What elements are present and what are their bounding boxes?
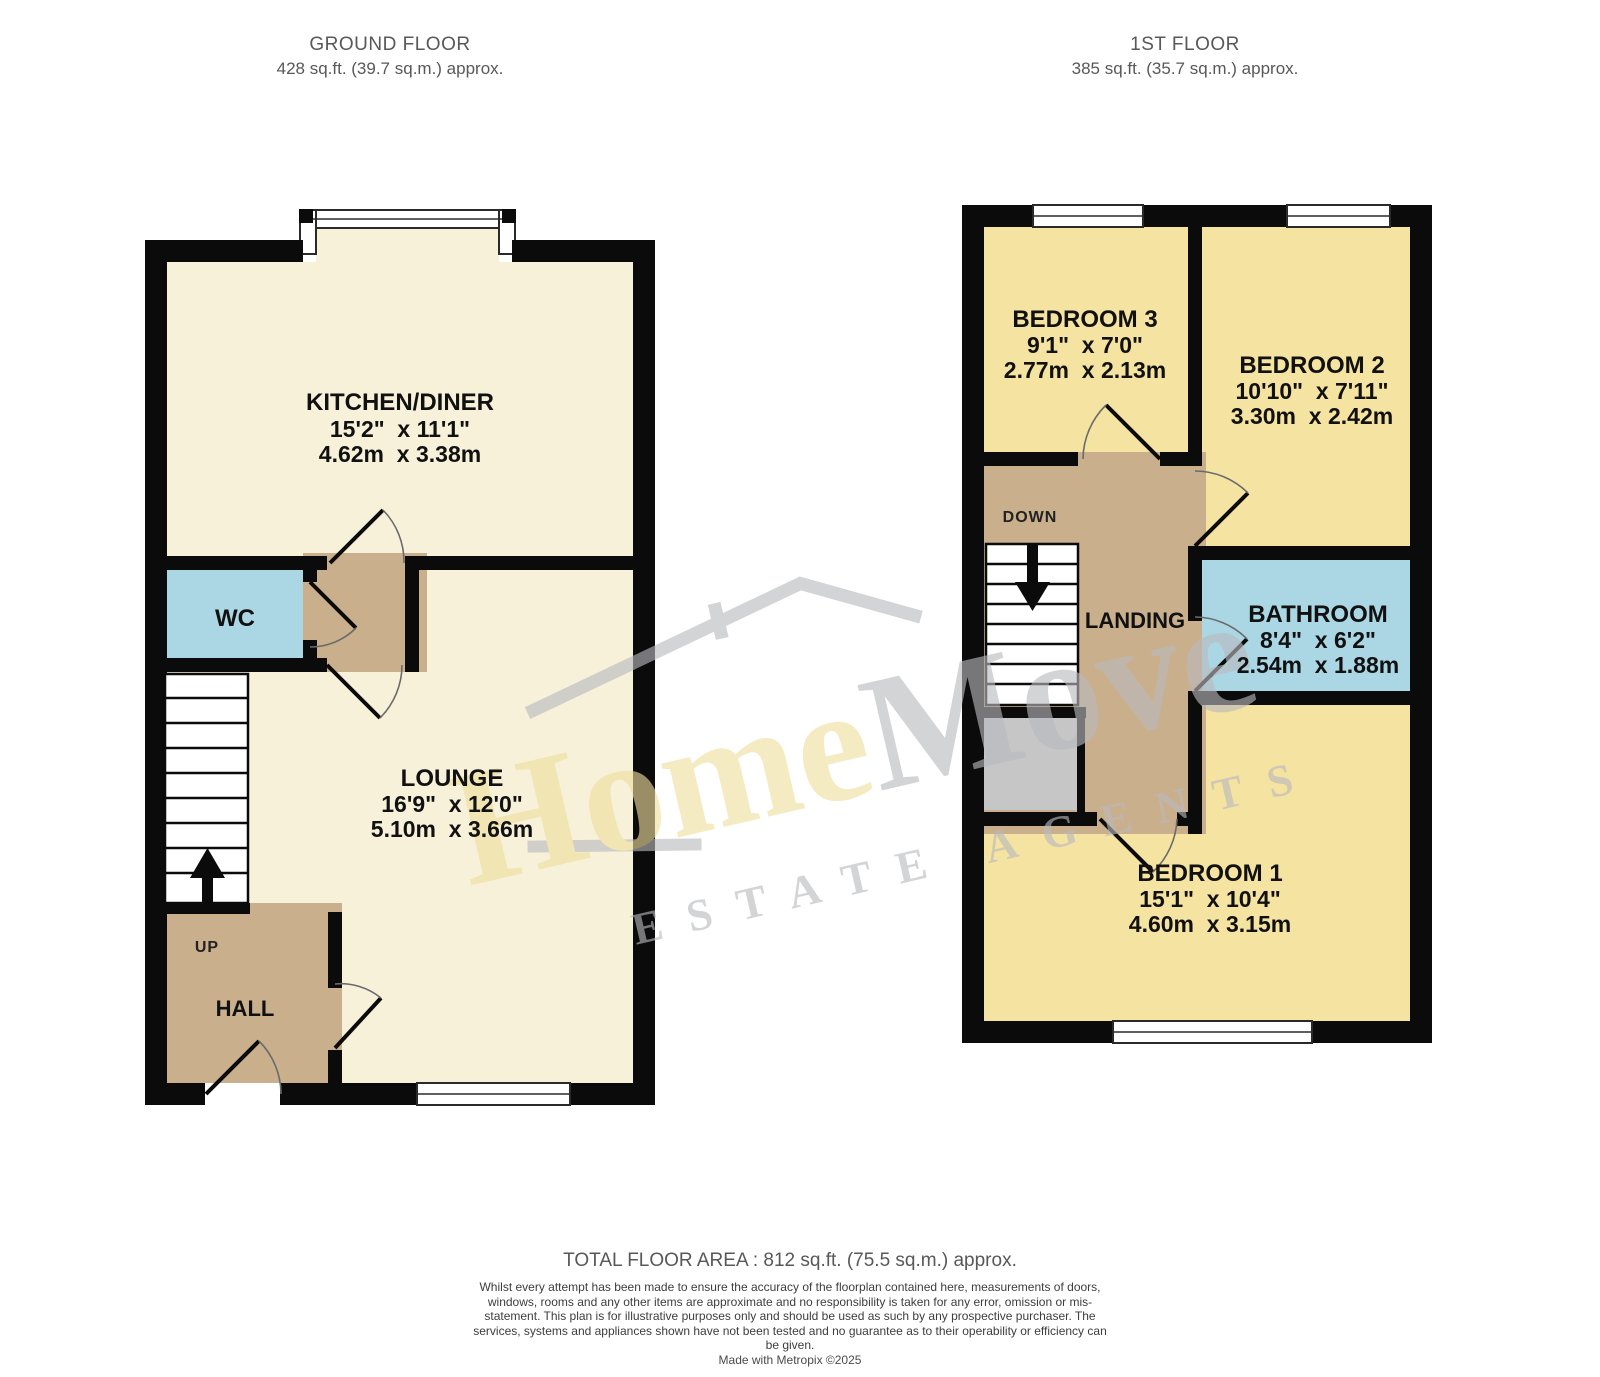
bathroom-label: BATHROOM: [1248, 601, 1388, 628]
bedroom2-label: BEDROOM 2: [1239, 352, 1384, 379]
down-label: DOWN: [1003, 509, 1058, 526]
total-floor-area: TOTAL FLOOR AREA : 812 sq.ft. (75.5 sq.m…: [290, 1250, 1290, 1272]
bedroom1-label: BEDROOM 1: [1137, 860, 1282, 887]
wc-label: WC: [215, 605, 255, 632]
bedroom3-imperial: 9'1" x 7'0": [1027, 332, 1143, 358]
hall-label: HALL: [216, 996, 275, 1021]
landing-label: LANDING: [1085, 608, 1185, 633]
bathroom-metric: 2.54m x 1.88m: [1237, 652, 1399, 678]
bedroom1-window: [1113, 1021, 1312, 1043]
metropix-credit: Made with Metropix ©2025: [470, 1353, 1110, 1367]
bedroom2-metric: 3.30m x 2.42m: [1231, 403, 1393, 429]
bay-interior: [316, 224, 499, 266]
floorplan-page: GROUND FLOOR 428 sq.ft. (39.7 sq.m.) app…: [0, 0, 1600, 1377]
bedroom1-imperial: 15'1" x 10'4": [1139, 886, 1280, 912]
bedroom3-metric: 2.77m x 2.13m: [1004, 357, 1166, 383]
floorplan-drawing: HomeMove ESTATE AGENTS KITCHEN/DINER 15'…: [0, 0, 1600, 1377]
lounge-imperial: 16'9" x 12'0": [381, 791, 522, 817]
bedroom3-window: [1033, 205, 1143, 227]
lounge-label: LOUNGE: [401, 765, 504, 792]
bedroom1-metric: 4.60m x 3.15m: [1129, 911, 1291, 937]
bedroom2-window: [1287, 205, 1390, 227]
lounge-window: [417, 1083, 570, 1105]
up-label: UP: [195, 939, 219, 956]
bedroom2-imperial: 10'10" x 7'11": [1236, 378, 1389, 404]
bedroom3-label: BEDROOM 3: [1012, 306, 1157, 333]
kitchen-imperial: 15'2" x 11'1": [330, 416, 470, 442]
lounge-metric: 5.10m x 3.66m: [371, 816, 533, 842]
disclaimer-text: Whilst every attempt has been made to en…: [470, 1280, 1110, 1353]
kitchen-metric: 4.62m x 3.38m: [319, 441, 481, 467]
kitchen-label: KITCHEN/DINER: [306, 389, 494, 416]
bathroom-imperial: 8'4" x 6'2": [1260, 627, 1376, 653]
